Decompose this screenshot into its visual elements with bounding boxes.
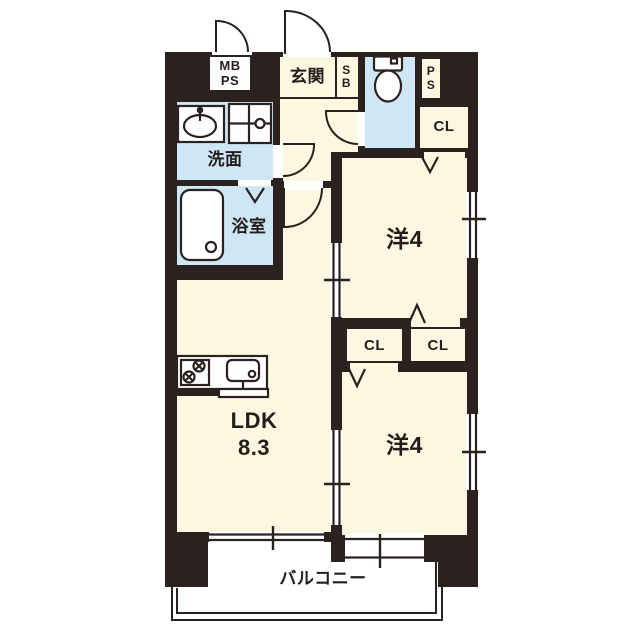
closet-mid-left-label: CL [345, 334, 404, 358]
closet-mid-right-label: CL [409, 334, 467, 358]
toilet-door-opening [358, 112, 365, 146]
wall-stub-window-right [424, 542, 438, 562]
meterbox-door-arc [217, 20, 249, 52]
sliding-partition-top [330, 243, 343, 317]
washroom-label: 洗面 [177, 148, 273, 172]
wall-stub-center [331, 542, 345, 562]
closet-fold-gap-bottom [350, 363, 398, 372]
balcony-label: バルコニー [208, 567, 438, 591]
ldk-balcony-window [209, 531, 324, 543]
shoe-box-label: S B [335, 57, 358, 97]
western-room-top-label: 洋4 [342, 226, 467, 254]
window-bottom-right [466, 414, 482, 490]
entrance-label: 玄関 [280, 57, 335, 97]
wall-block-left [165, 542, 208, 587]
entrance-step-line [280, 97, 358, 99]
entrance-door-arc [286, 10, 331, 52]
closet-top-right-label: CL [418, 105, 470, 150]
ldk-label: LDK 8.3 [177, 404, 331, 464]
bathroom-door-opening [238, 180, 271, 186]
meter-box-label: MB PS [208, 55, 252, 92]
bathroom-label: 浴室 [225, 216, 273, 238]
western-balcony-window [345, 534, 424, 562]
closet-wall-patch [424, 152, 465, 158]
toilet-room [365, 57, 415, 148]
closet-fold-gap-top [411, 318, 460, 327]
floor-plan: MB PS 玄関 S B P S CL 洗面 浴室 洋4 CL CL LDK 8… [0, 0, 640, 640]
balcony-outline [171, 587, 443, 621]
washroom-door-opening [273, 145, 283, 178]
window-top-right [466, 192, 482, 258]
partition-dotted-line [334, 374, 337, 430]
wall-block-right [438, 542, 478, 587]
pipe-space-label: P S [420, 57, 442, 100]
western-room-bottom-label: 洋4 [342, 432, 467, 460]
